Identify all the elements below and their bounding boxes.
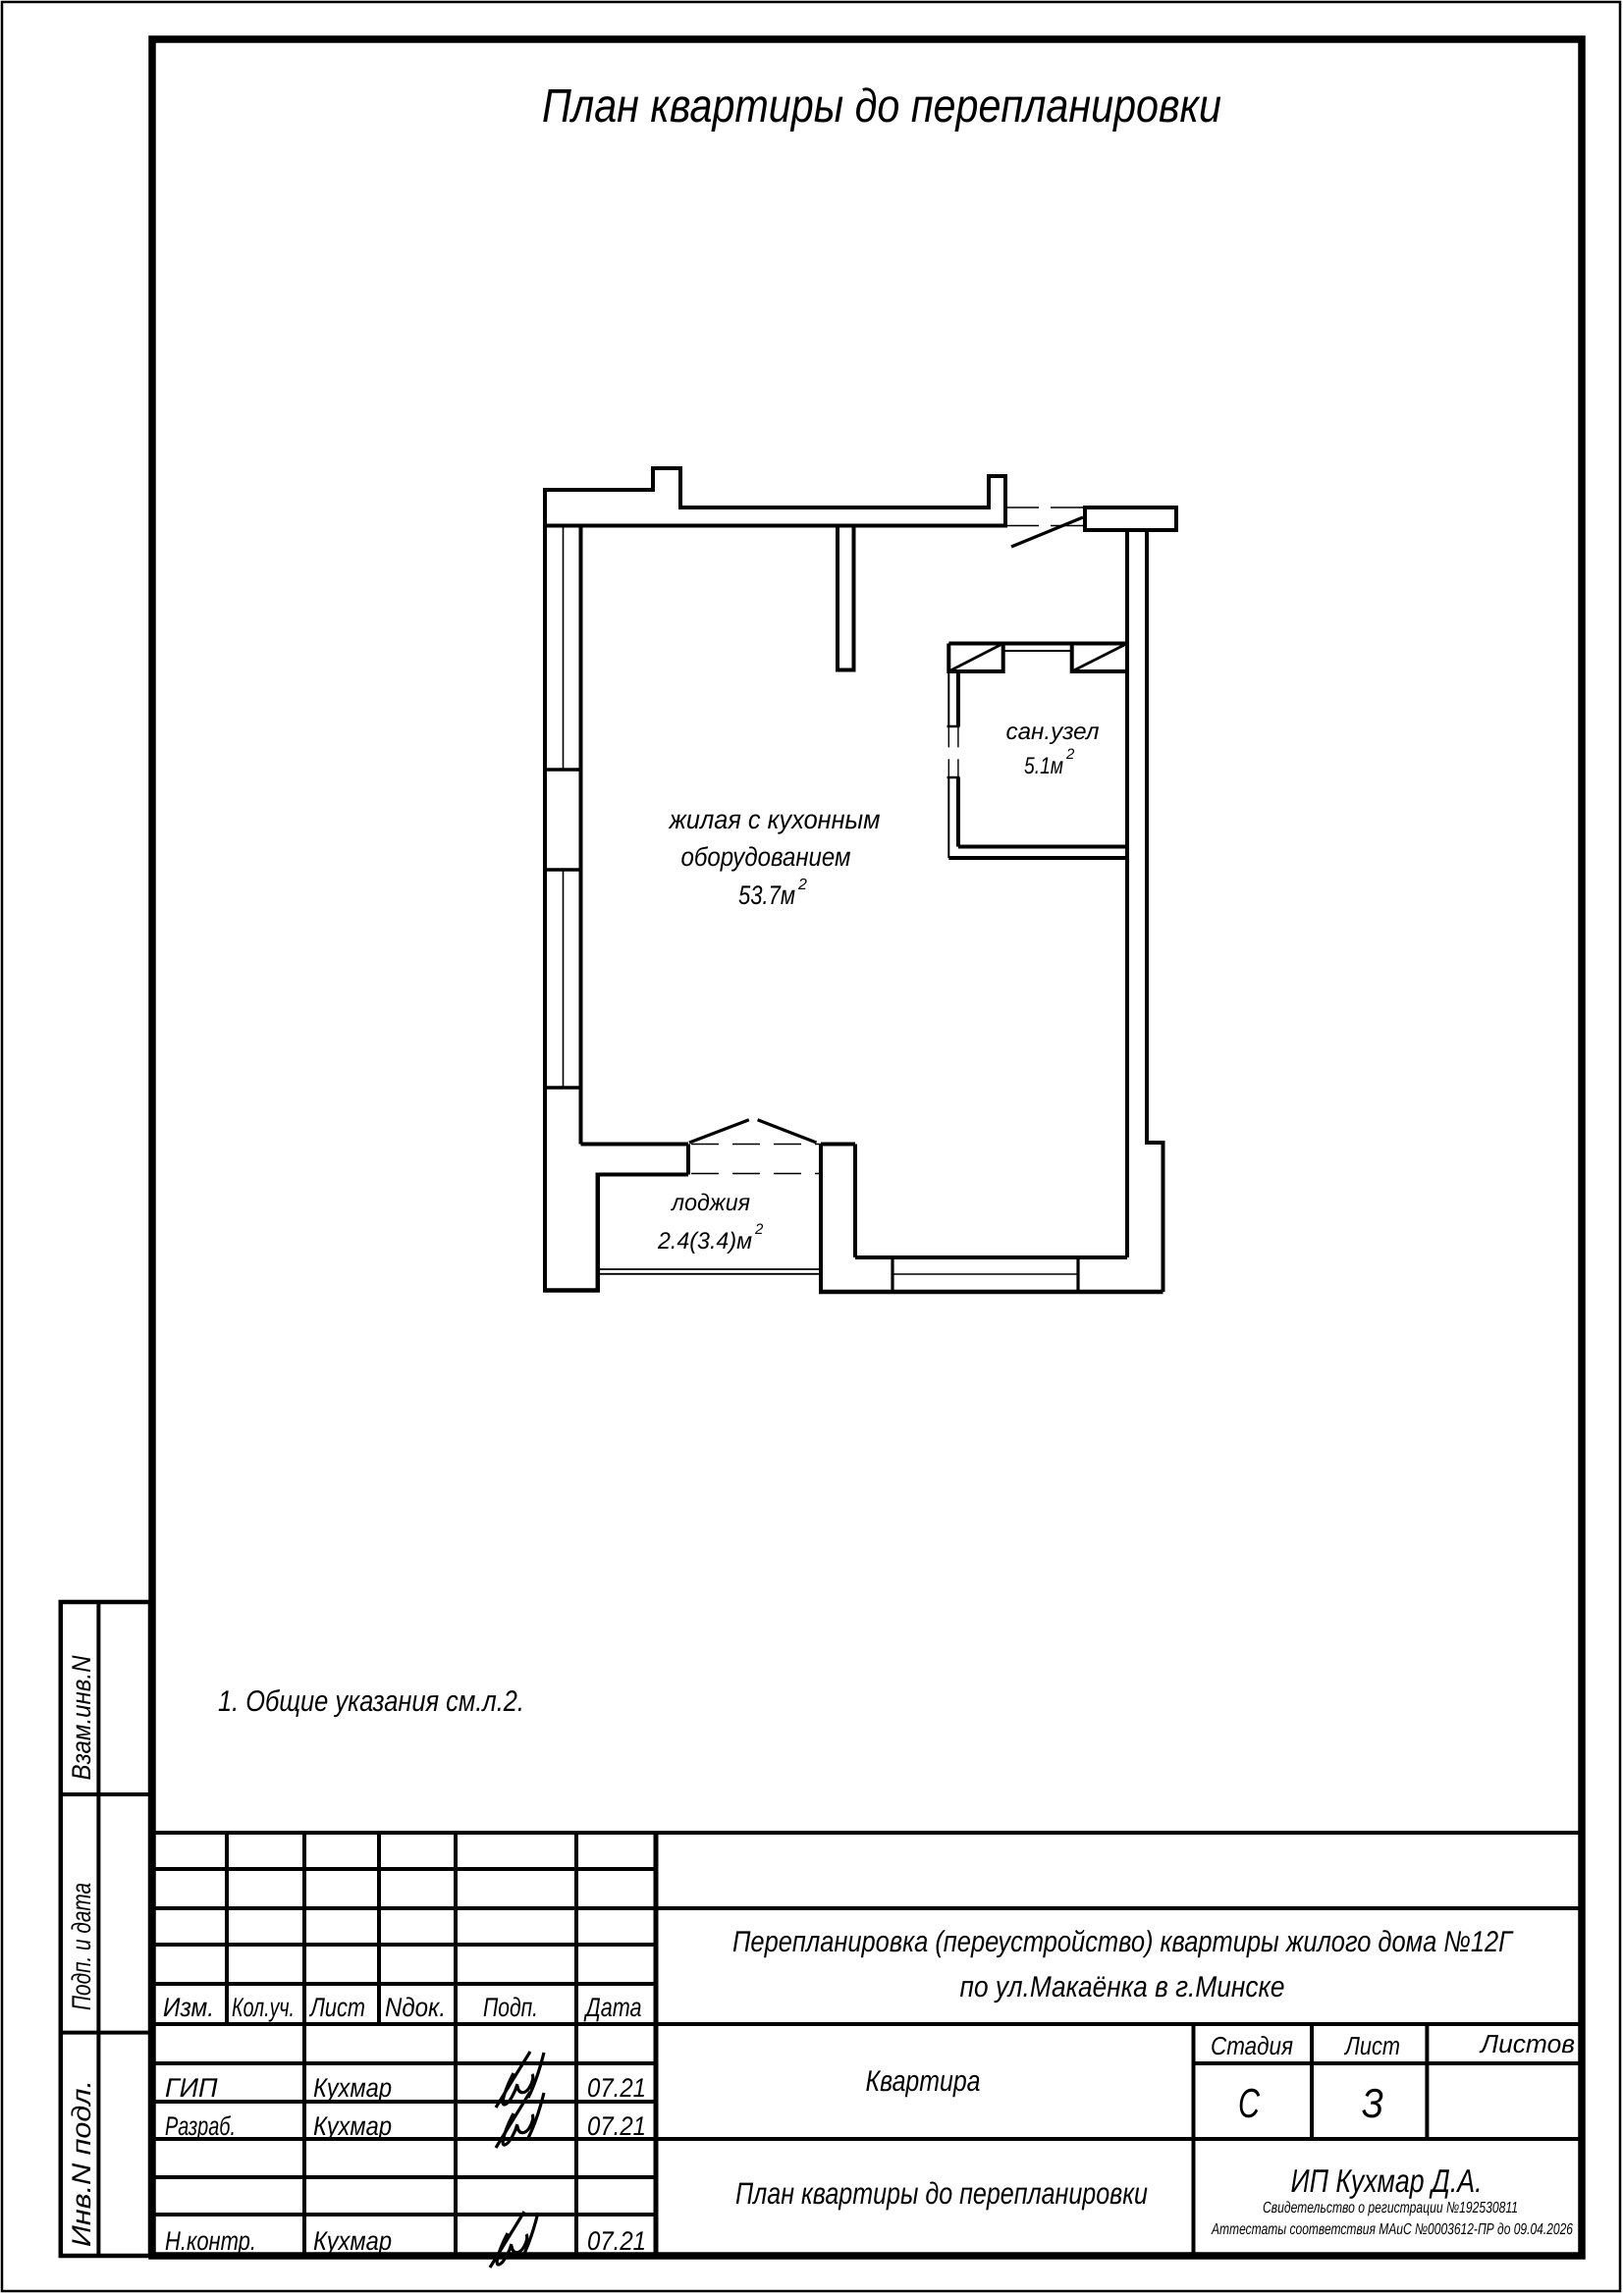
svg-text:оборудованием: оборудованием [681,842,851,872]
svg-text:План квартиры до перепланировк: План квартиры до перепланировки [542,80,1221,133]
svg-text:Стадия: Стадия [1211,2031,1293,2060]
svg-text:Аттестаты соответствия МАиС №0: Аттестаты соответствия МАиС №0003612-ПР … [1211,2221,1573,2238]
svg-text:З: З [1362,2080,1383,2126]
svg-text:Nдок.: Nдок. [385,1993,446,2022]
svg-text:ИП Кухмар Д.А.: ИП Кухмар Д.А. [1291,2163,1483,2199]
svg-text:Подп.: Подп. [483,1993,538,2022]
svg-text:2.4(3.4)м: 2.4(3.4)м [657,1228,752,1255]
svg-text:Дата: Дата [583,1993,641,2022]
svg-text:2: 2 [797,877,807,893]
svg-text:Разраб.: Разраб. [165,2111,236,2141]
svg-text:07.21: 07.21 [587,2111,646,2141]
svg-text:Н.контр.: Н.контр. [165,2226,256,2256]
svg-text:2: 2 [1065,746,1075,763]
svg-text:53.7м: 53.7м [738,881,795,910]
svg-text:1. Общие указания см.л.2.: 1. Общие указания см.л.2. [218,1685,524,1718]
svg-text:План квартиры до перепланировк: План квартиры до перепланировки [735,2176,1148,2211]
svg-text:Изм.: Изм. [163,1993,214,2022]
svg-text:Свидетельство о регистрации №1: Свидетельство о регистрации №192530811 [1263,2200,1518,2216]
svg-text:Взам.инв.N: Взам.инв.N [67,1655,96,1780]
svg-text:Перепланировка (переустройство: Перепланировка (переустройство) квартиры… [732,1926,1514,1958]
svg-text:Инв.N подл.: Инв.N подл. [67,2080,96,2247]
svg-text:С: С [1238,2080,1260,2126]
svg-text:Кол.уч.: Кол.уч. [232,1993,295,2022]
svg-text:сан.узел: сан.узел [1006,719,1100,745]
svg-text:Кухмар: Кухмар [313,2073,392,2103]
svg-text:лоджия: лоджия [670,1190,750,1216]
svg-text:Лист: Лист [1343,2031,1400,2060]
svg-text:2: 2 [754,1221,764,1238]
svg-text:Лист: Лист [308,1993,365,2022]
svg-text:Подп. и дата: Подп. и дата [67,1883,96,2010]
svg-text:5.1м: 5.1м [1024,753,1063,779]
svg-text:жилая с кухонным: жилая с кухонным [669,805,881,834]
svg-text:Кухмар: Кухмар [313,2226,392,2256]
svg-text:ГИП: ГИП [165,2073,218,2103]
svg-text:Листов: Листов [1479,2029,1575,2058]
svg-text:Кухмар: Кухмар [313,2111,392,2141]
svg-text:07.21: 07.21 [587,2226,646,2256]
svg-text:07.21: 07.21 [587,2073,646,2103]
svg-text:Квартира: Квартира [866,2065,981,2098]
svg-text:по ул.Макаёнка в г.Минске: по ул.Макаёнка в г.Минске [960,1971,1285,2003]
